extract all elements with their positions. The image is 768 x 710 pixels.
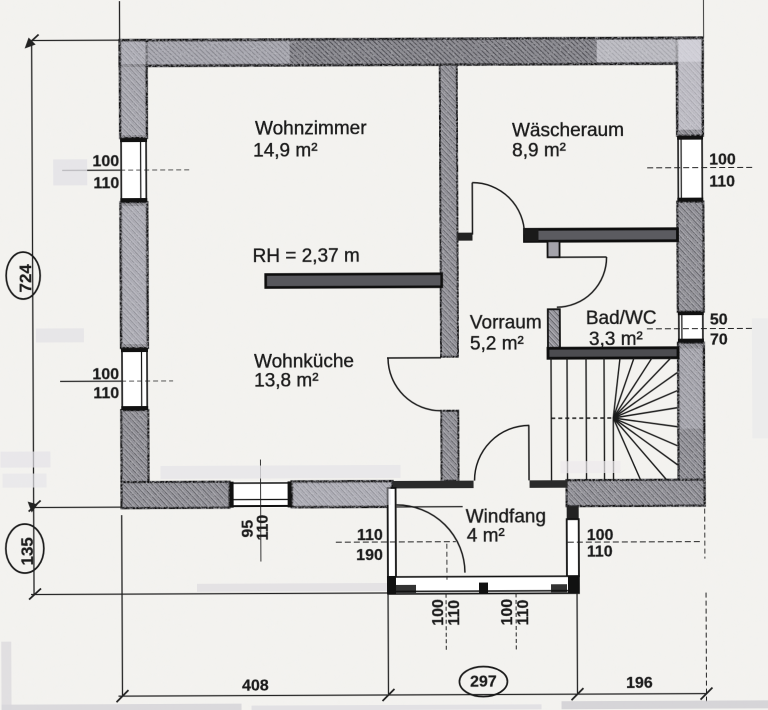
svg-text:110: 110 bbox=[515, 599, 532, 625]
svg-text:110: 110 bbox=[93, 385, 119, 402]
svg-text:4 m²: 4 m² bbox=[467, 525, 505, 546]
svg-text:70: 70 bbox=[710, 331, 728, 348]
svg-text:RH = 2,37 m: RH = 2,37 m bbox=[253, 246, 360, 267]
svg-text:13,8 m²: 13,8 m² bbox=[254, 370, 319, 391]
svg-text:110: 110 bbox=[709, 173, 735, 190]
svg-text:Bad/WC: Bad/WC bbox=[586, 308, 657, 329]
svg-text:5,2 m²: 5,2 m² bbox=[470, 333, 524, 354]
svg-text:Windfang: Windfang bbox=[466, 506, 546, 527]
svg-text:408: 408 bbox=[242, 678, 269, 695]
svg-text:Wohnküche: Wohnküche bbox=[254, 351, 354, 372]
svg-text:100: 100 bbox=[430, 599, 447, 626]
svg-text:297: 297 bbox=[470, 674, 497, 691]
svg-text:Vorraum: Vorraum bbox=[470, 312, 542, 333]
svg-text:8,9 m²: 8,9 m² bbox=[512, 140, 566, 161]
svg-text:110: 110 bbox=[446, 600, 463, 626]
svg-text:50: 50 bbox=[710, 311, 728, 328]
svg-text:724: 724 bbox=[16, 264, 35, 293]
svg-text:3,3 m²: 3,3 m² bbox=[589, 329, 643, 350]
svg-text:110: 110 bbox=[587, 544, 613, 561]
svg-text:100: 100 bbox=[587, 527, 614, 544]
svg-text:135: 135 bbox=[18, 537, 37, 565]
svg-text:Wohnzimmer: Wohnzimmer bbox=[255, 118, 367, 139]
svg-text:190: 190 bbox=[356, 547, 383, 564]
svg-text:100: 100 bbox=[709, 151, 736, 168]
svg-text:100: 100 bbox=[92, 366, 119, 383]
svg-text:110: 110 bbox=[93, 175, 119, 192]
svg-text:100: 100 bbox=[499, 599, 516, 626]
svg-text:100: 100 bbox=[92, 153, 119, 170]
svg-text:Wäscheraum: Wäscheraum bbox=[512, 120, 624, 141]
svg-text:110: 110 bbox=[357, 527, 383, 544]
svg-text:196: 196 bbox=[626, 675, 653, 692]
svg-text:110: 110 bbox=[255, 515, 272, 541]
svg-text:14,9 m²: 14,9 m² bbox=[253, 140, 318, 161]
